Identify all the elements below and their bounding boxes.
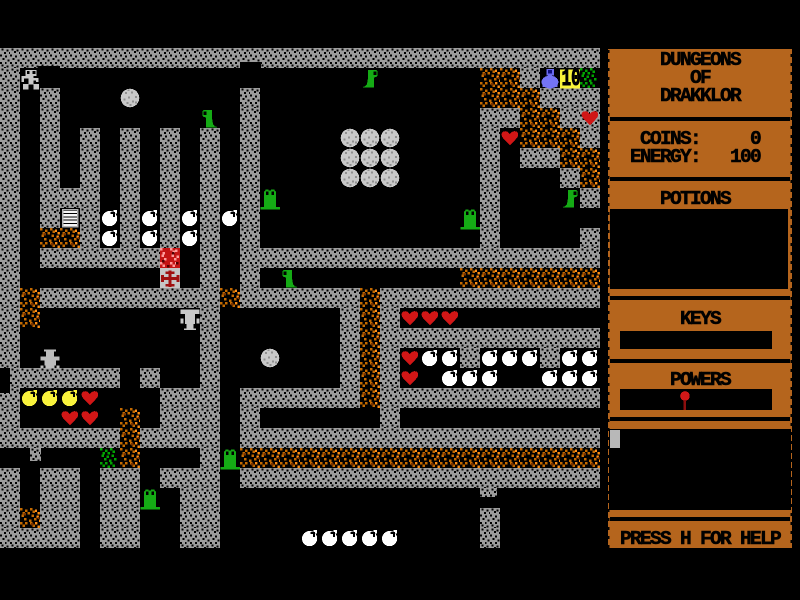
svg-text:ENERGY:: ENERGY: xyxy=(630,146,702,168)
svg-text:PRESSHFORHELP: PRESSHFORHELP xyxy=(620,528,782,550)
svg-text:DRAKKLOR: DRAKKLOR xyxy=(660,85,742,107)
svg-text:POTIONS: POTIONS xyxy=(660,188,732,210)
svg-text:100: 100 xyxy=(730,146,762,168)
svg-text:POWERS: POWERS xyxy=(670,369,732,391)
svg-text:KEYS: KEYS xyxy=(680,308,722,330)
